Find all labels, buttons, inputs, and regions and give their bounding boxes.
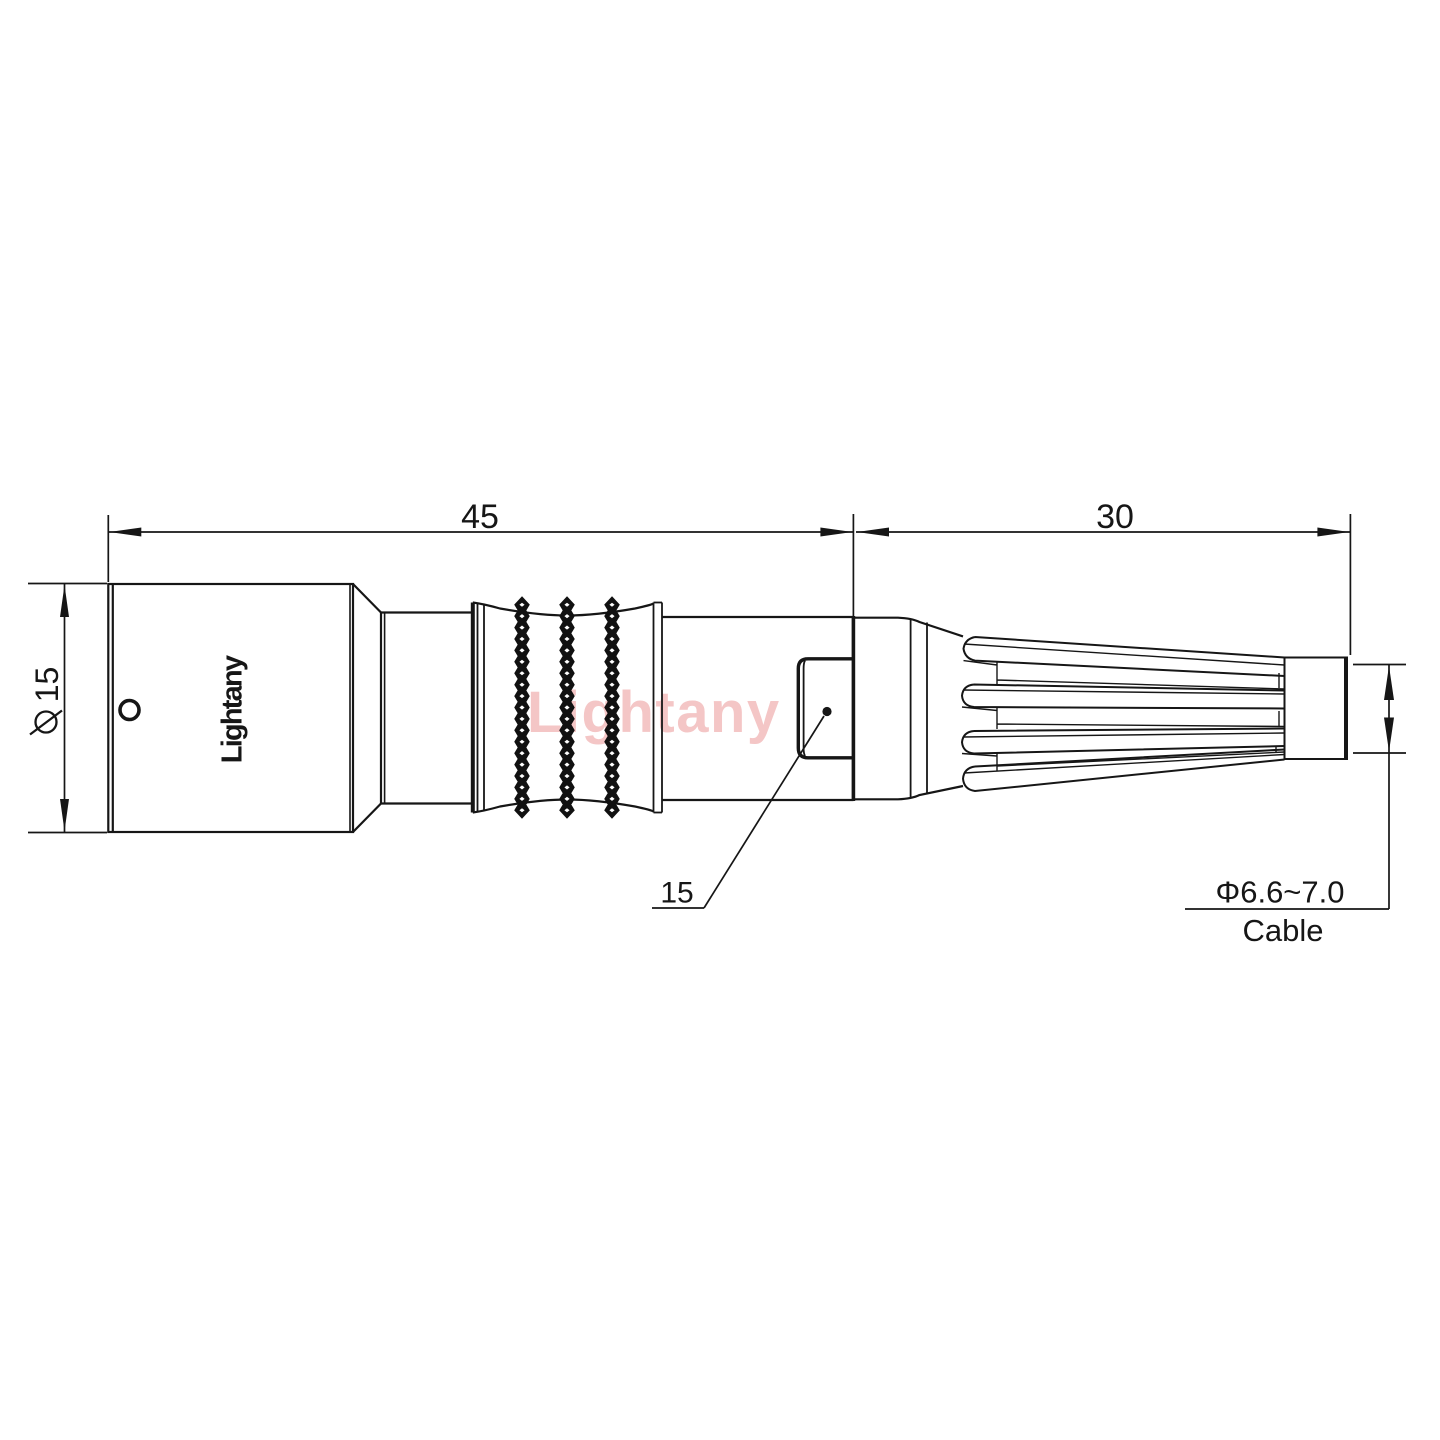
svg-text:Φ6.6~7.0: Φ6.6~7.0 xyxy=(1215,875,1344,910)
svg-text:30: 30 xyxy=(1096,498,1134,536)
svg-text:15: 15 xyxy=(29,667,65,703)
svg-text:Lightany: Lightany xyxy=(217,655,249,763)
svg-text:45: 45 xyxy=(461,498,499,536)
svg-text:15: 15 xyxy=(660,877,693,910)
svg-text:Cable: Cable xyxy=(1243,913,1324,948)
